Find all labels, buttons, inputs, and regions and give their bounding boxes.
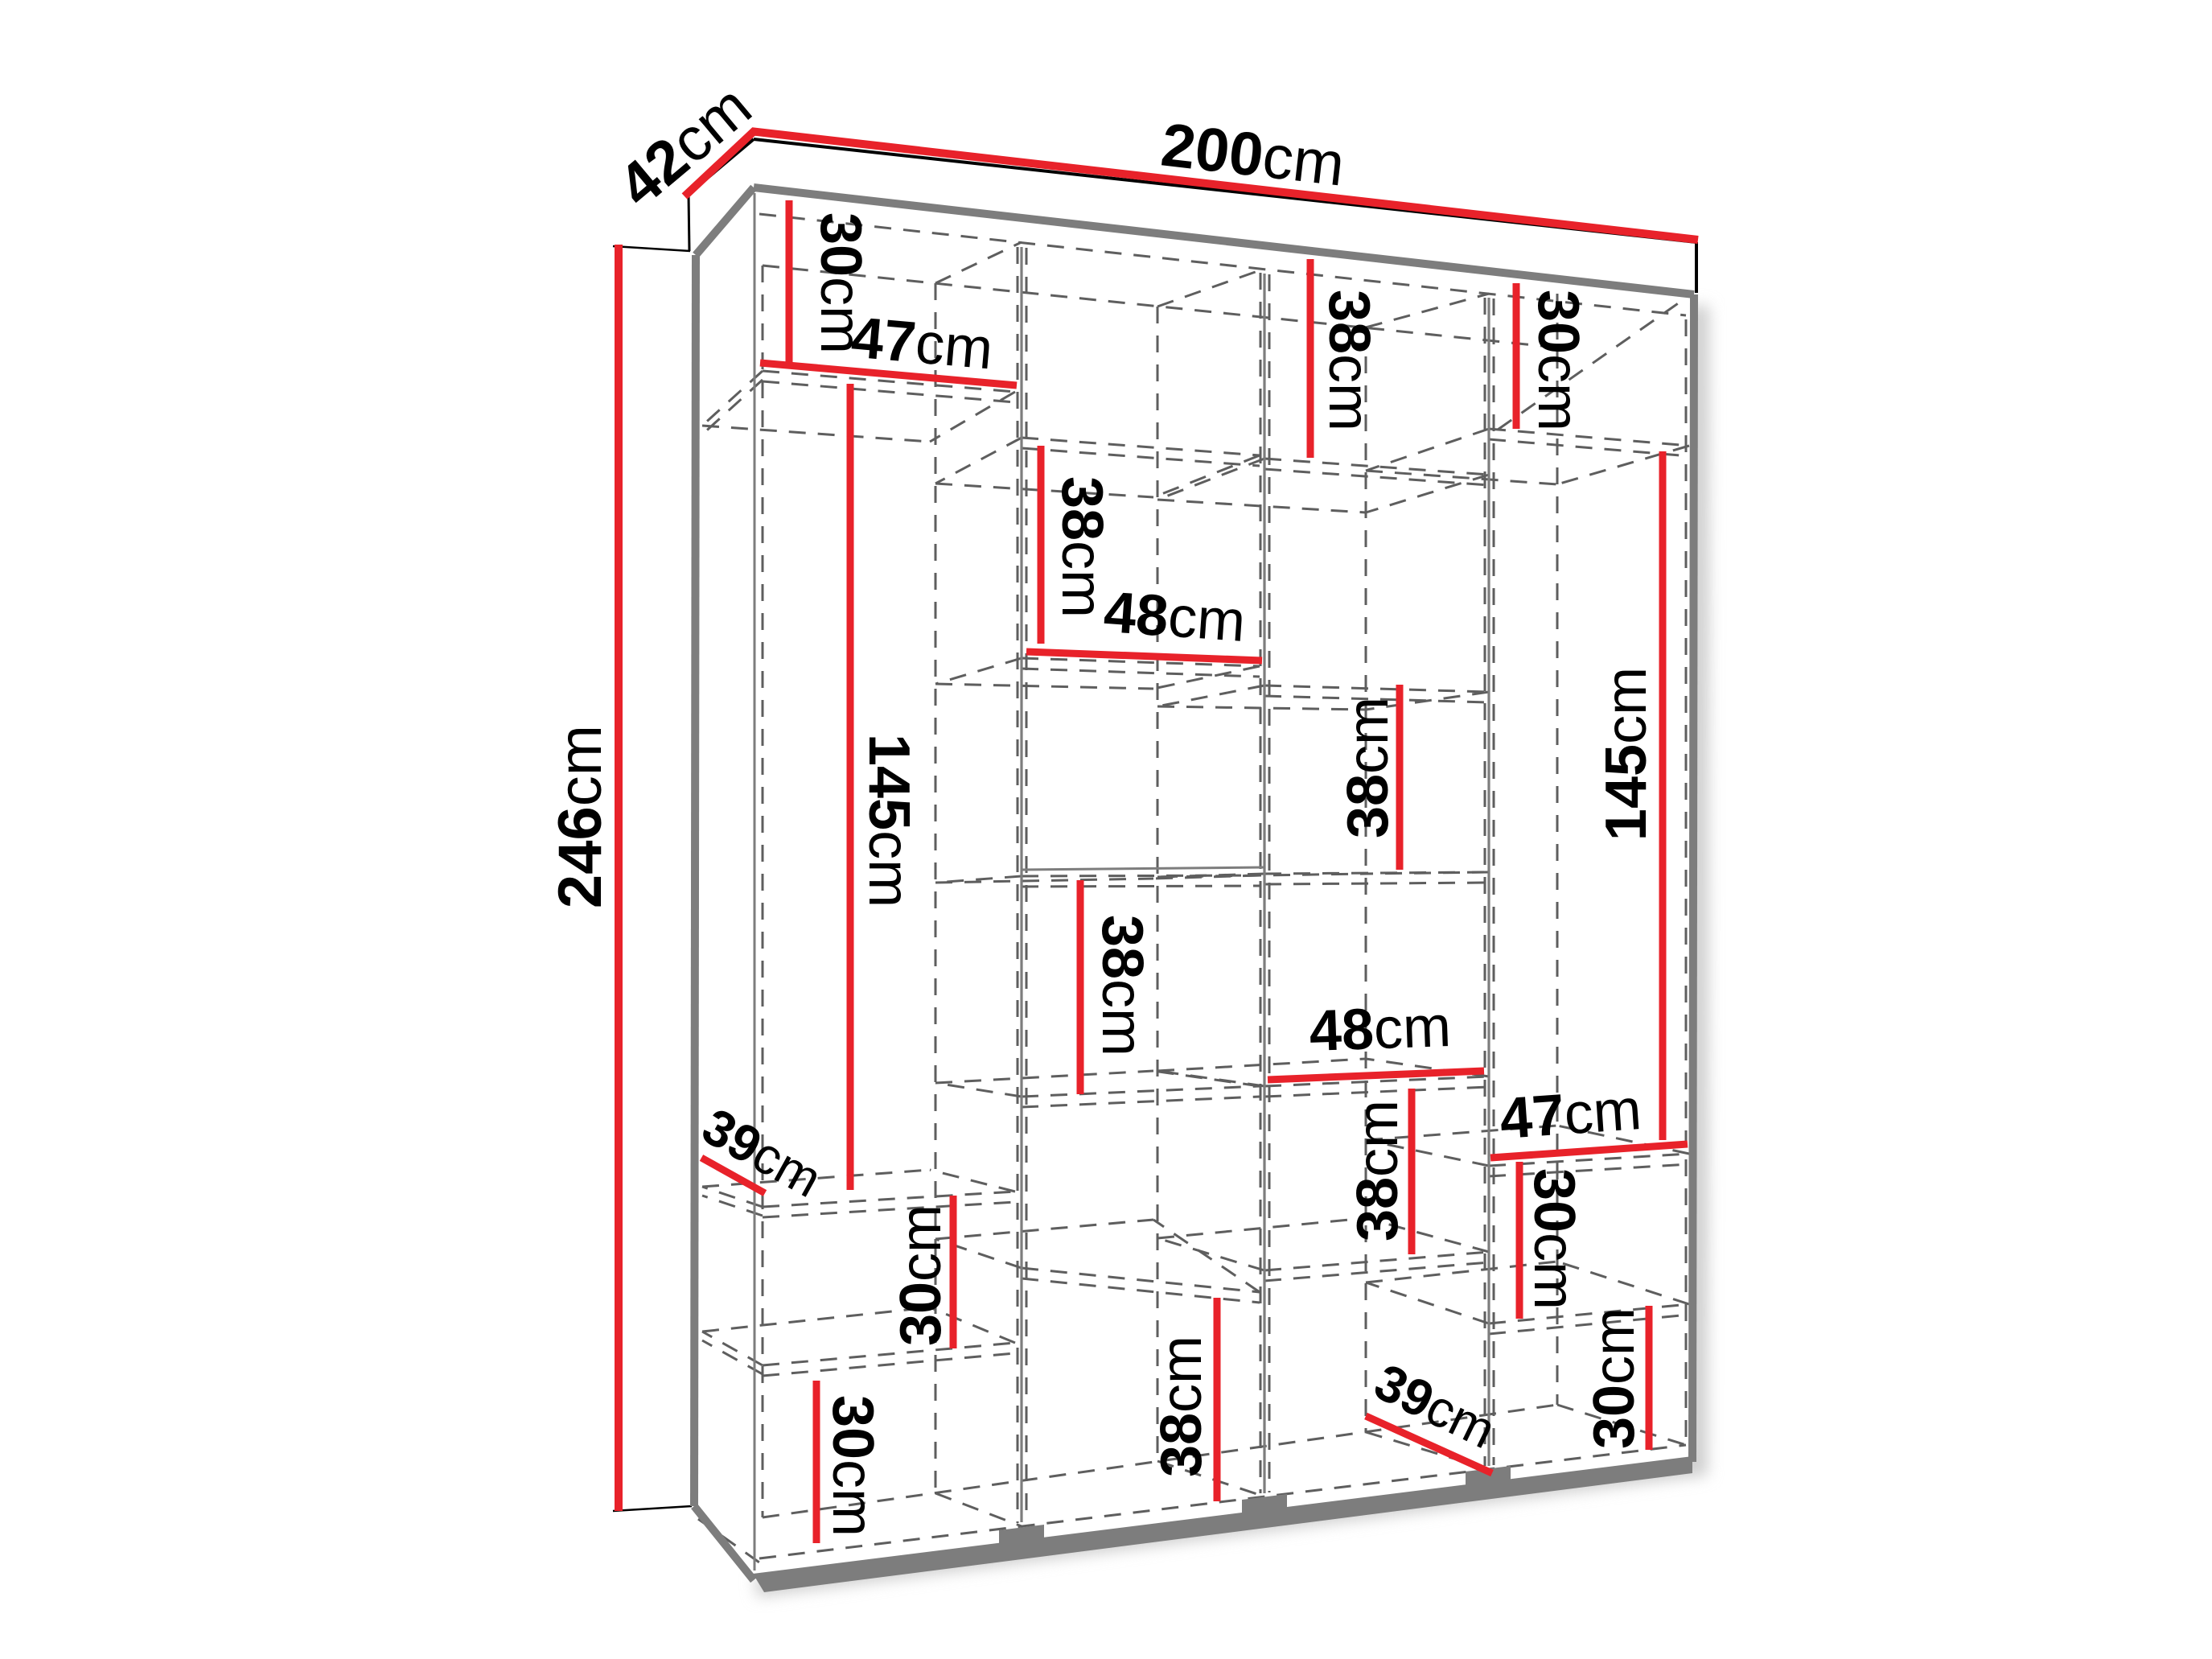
svg-text:246cm: 246cm: [546, 725, 615, 908]
svg-text:38cm: 38cm: [1336, 697, 1400, 838]
svg-text:38cm: 38cm: [1346, 1100, 1410, 1241]
svg-text:38cm: 38cm: [1149, 1336, 1214, 1477]
svg-text:47cm: 47cm: [1498, 1077, 1643, 1151]
svg-text:30cm: 30cm: [889, 1204, 953, 1346]
svg-text:145cm: 145cm: [857, 734, 921, 908]
svg-text:48cm: 48cm: [1102, 580, 1248, 654]
svg-text:48cm: 48cm: [1308, 994, 1452, 1064]
svg-text:38cm: 38cm: [1090, 915, 1154, 1056]
svg-text:38cm: 38cm: [1317, 290, 1381, 431]
svg-text:145cm: 145cm: [1594, 667, 1659, 841]
svg-text:30cm: 30cm: [1582, 1307, 1647, 1449]
svg-text:30cm: 30cm: [1526, 290, 1590, 431]
svg-text:30cm: 30cm: [1522, 1168, 1586, 1310]
svg-text:47cm: 47cm: [849, 306, 995, 382]
svg-text:30cm: 30cm: [820, 1395, 885, 1537]
